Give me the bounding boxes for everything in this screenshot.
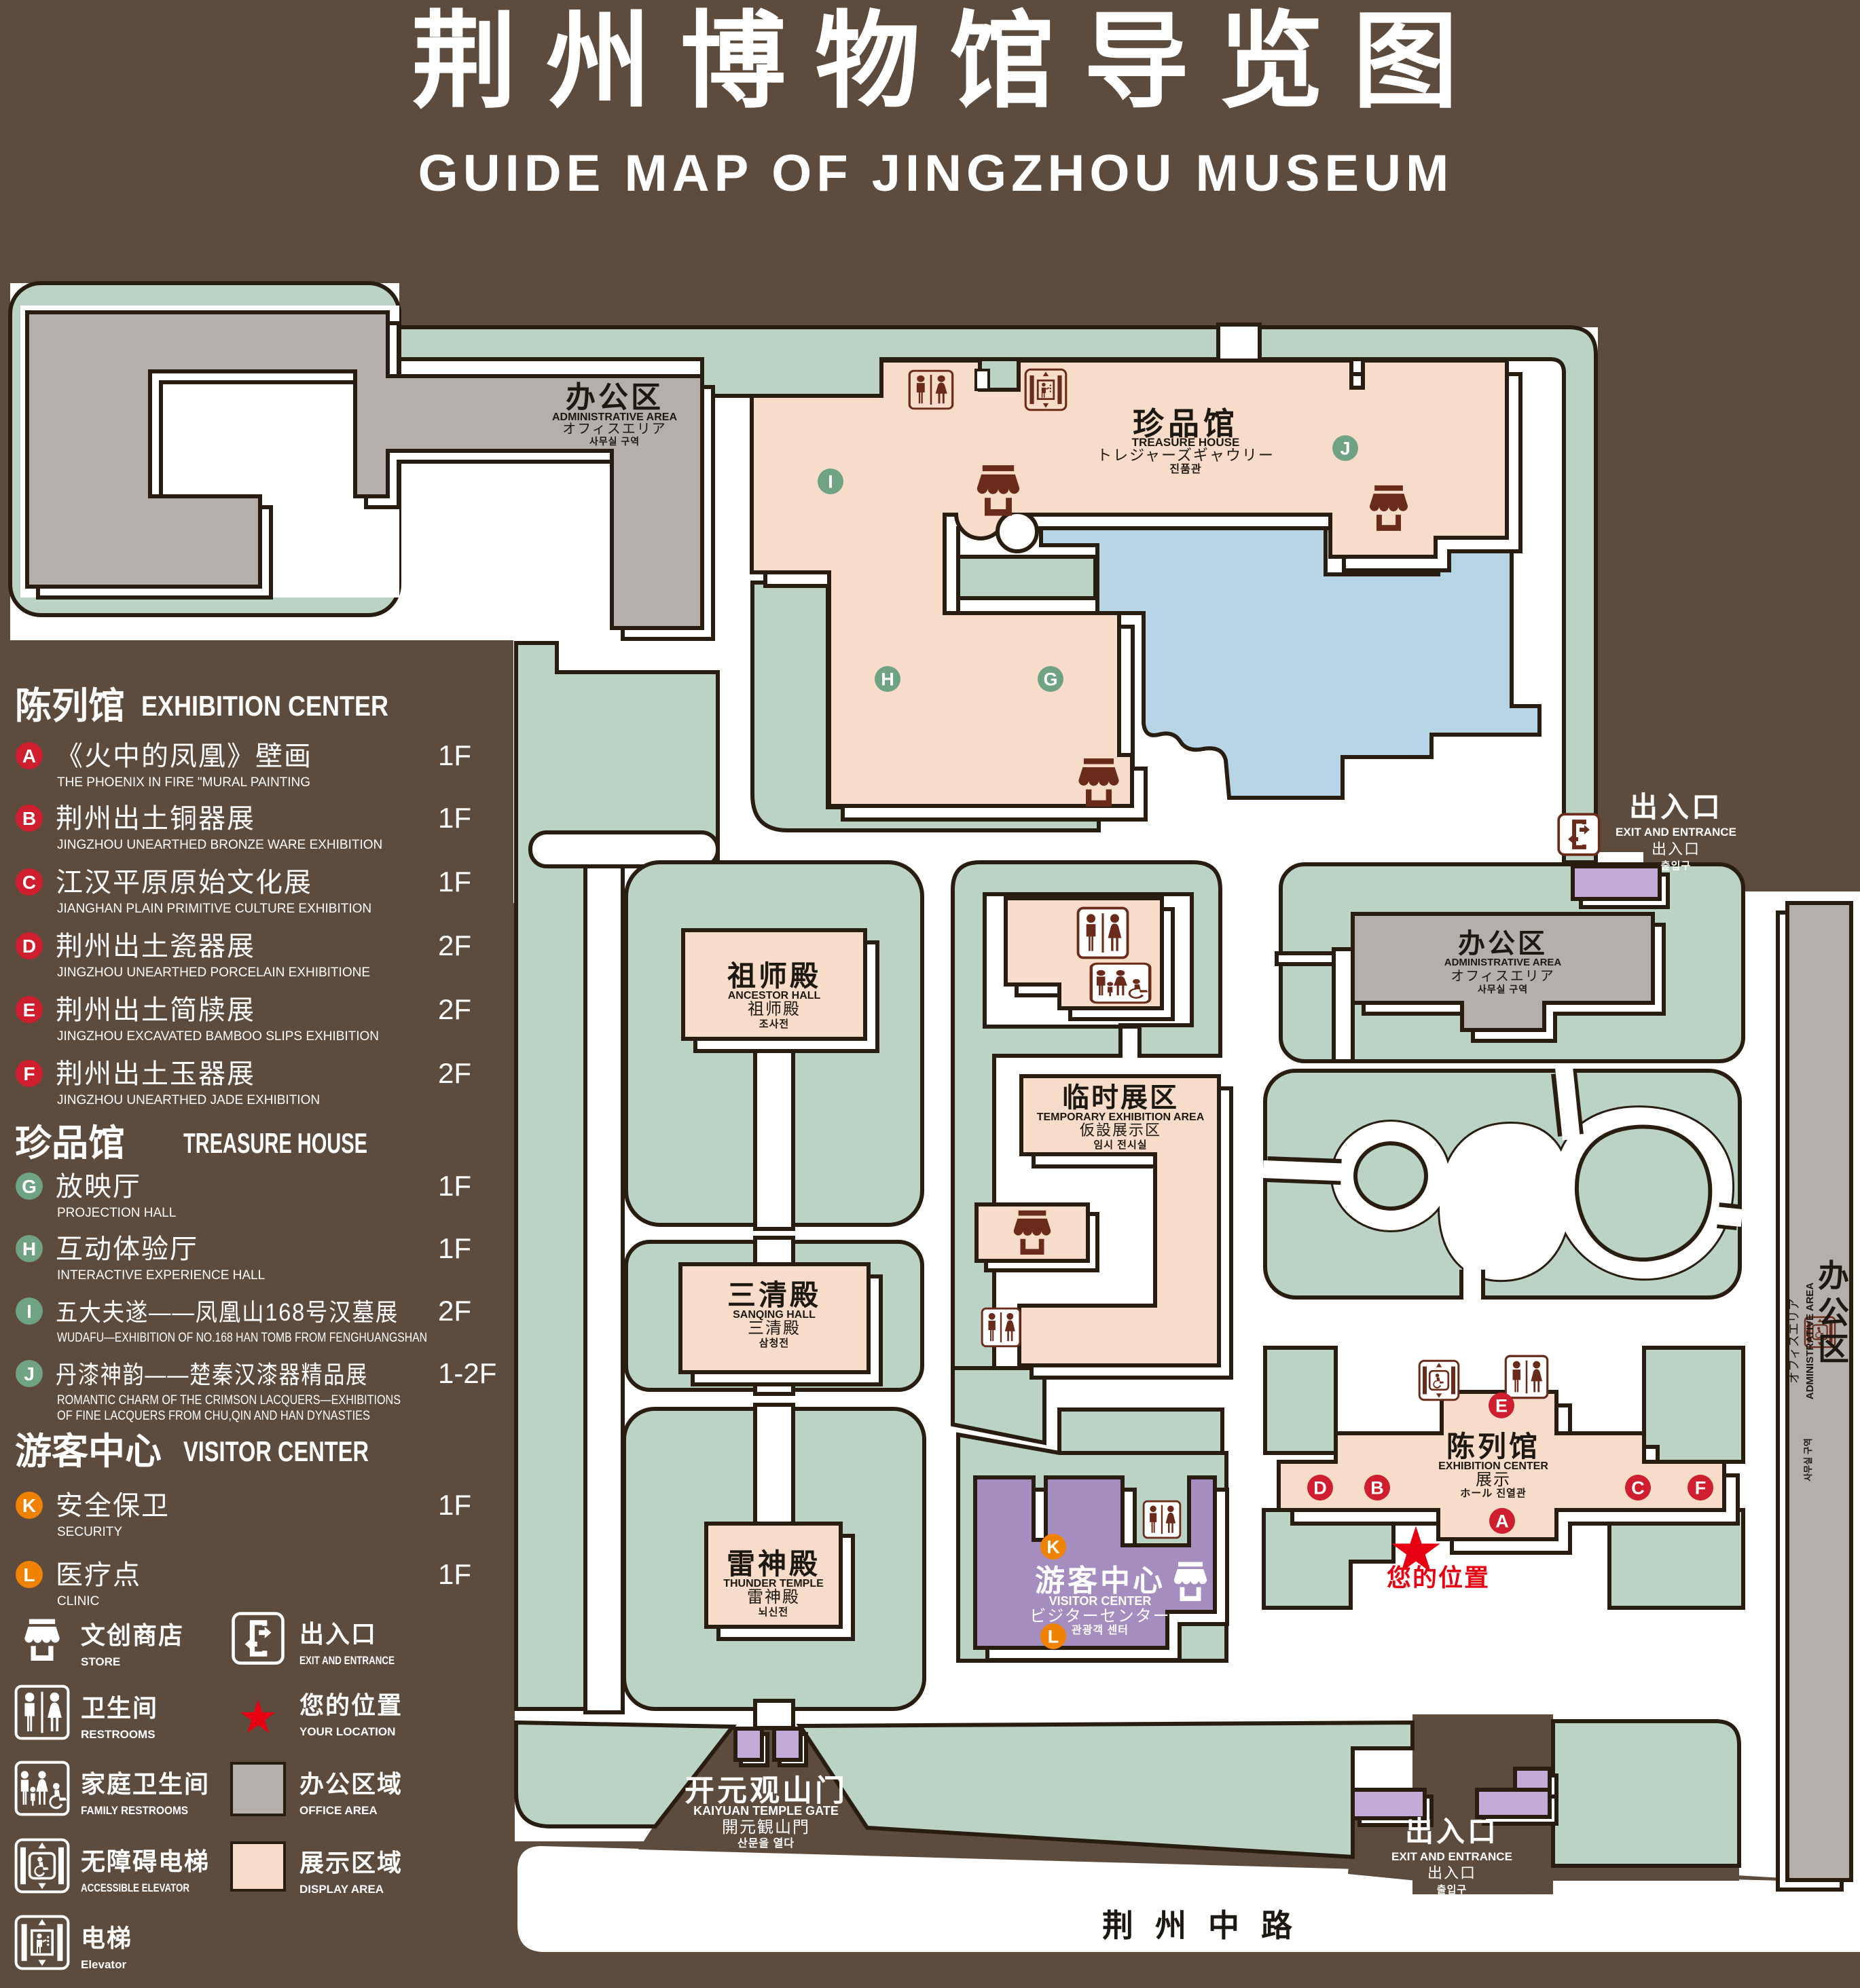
- svg-text:医疗点: 医疗点: [56, 1560, 141, 1590]
- svg-text:EXIT AND ENTRANCE: EXIT AND ENTRANCE: [299, 1654, 395, 1667]
- svg-text:VISITOR CENTER: VISITOR CENTER: [183, 1435, 369, 1467]
- svg-text:安全保卫: 安全保卫: [56, 1491, 170, 1521]
- svg-text:互动体验厅: 互动体验厅: [56, 1234, 198, 1264]
- svg-text:オフィスエリア: オフィスエリア: [1787, 1298, 1801, 1384]
- svg-text:THE PHOENIX IN FIRE "MURAL PAI: THE PHOENIX IN FIRE "MURAL PAINTING: [57, 775, 310, 790]
- svg-text:B: B: [1370, 1478, 1384, 1498]
- svg-text:F: F: [1695, 1478, 1707, 1498]
- svg-text:J: J: [1340, 439, 1350, 459]
- svg-text:C: C: [22, 872, 36, 893]
- svg-text:CLINIC: CLINIC: [57, 1594, 99, 1608]
- svg-text:E: E: [23, 999, 36, 1020]
- svg-text:卫生间: 卫生间: [81, 1694, 158, 1722]
- svg-text:A: A: [22, 745, 36, 767]
- svg-text:丹漆神韵——楚秦汉漆器精品展: 丹漆神韵——楚秦汉漆器精品展: [56, 1361, 368, 1388]
- svg-text:G: G: [22, 1176, 37, 1197]
- svg-text:VISITOR CENTER: VISITOR CENTER: [1049, 1594, 1152, 1608]
- svg-text:1F: 1F: [438, 1232, 471, 1264]
- svg-text:출입구: 출입구: [1661, 860, 1691, 872]
- svg-text:ADMINISTRATIVE AREA: ADMINISTRATIVE AREA: [1444, 957, 1562, 968]
- svg-text:展示: 展示: [1476, 1471, 1511, 1489]
- svg-text:ACCESSIBLE ELEVATOR: ACCESSIBLE ELEVATOR: [81, 1881, 189, 1894]
- svg-text:C: C: [1631, 1478, 1645, 1498]
- svg-text:游客中心: 游客中心: [15, 1431, 162, 1472]
- svg-text:J: J: [24, 1363, 35, 1384]
- svg-text:A: A: [1495, 1511, 1509, 1532]
- svg-text:FAMILY RESTROOMS: FAMILY RESTROOMS: [81, 1804, 188, 1817]
- svg-text:H: H: [22, 1238, 36, 1259]
- svg-text:出入口: 出入口: [1405, 1816, 1499, 1847]
- svg-text:임시 전시실: 임시 전시실: [1093, 1139, 1147, 1151]
- svg-text:出入口: 出入口: [299, 1620, 377, 1648]
- svg-text:祖师殿: 祖师殿: [727, 960, 821, 992]
- svg-text:办公区: 办公区: [566, 381, 663, 414]
- svg-text:TREASURE HOUSE: TREASURE HOUSE: [183, 1127, 367, 1159]
- svg-text:办公区域: 办公区域: [299, 1770, 403, 1798]
- svg-text:뇌신전: 뇌신전: [759, 1606, 788, 1618]
- svg-text:EXHIBITION CENTER: EXHIBITION CENTER: [141, 690, 388, 722]
- svg-text:1F: 1F: [438, 739, 471, 771]
- svg-text:L: L: [23, 1564, 35, 1585]
- svg-text:K: K: [1046, 1537, 1060, 1558]
- svg-text:JINGZHOU UNEARTHED PORCELAIN E: JINGZHOU UNEARTHED PORCELAIN EXHIBITIONE: [57, 965, 370, 980]
- svg-text:祖师殿: 祖师殿: [748, 1000, 801, 1018]
- svg-text:荆州出土铜器展: 荆州出土铜器展: [56, 804, 255, 834]
- svg-text:文创商店: 文创商店: [81, 1621, 184, 1649]
- svg-text:I: I: [828, 472, 833, 492]
- svg-text:L: L: [1048, 1627, 1059, 1647]
- svg-text:JIANGHAN PLAIN PRIMITIVE CULTU: JIANGHAN PLAIN PRIMITIVE CULTURE EXHIBIT…: [57, 902, 371, 916]
- svg-text:出入口: 出入口: [1652, 841, 1700, 858]
- svg-text:관광객 센터: 관광객 센터: [1072, 1623, 1129, 1636]
- svg-text:2F: 2F: [438, 993, 471, 1025]
- svg-text:INTERACTIVE EXPERIENCE HALL: INTERACTIVE EXPERIENCE HALL: [57, 1268, 265, 1283]
- svg-text:E: E: [1495, 1396, 1508, 1416]
- svg-text:オフィスエリア: オフィスエリア: [1451, 969, 1555, 984]
- svg-text:《火中的凤凰》壁画: 《火中的凤凰》壁画: [56, 741, 312, 771]
- svg-text:G: G: [1043, 669, 1057, 690]
- svg-text:OF FINE LACQUERS FROM CHU,QIN: OF FINE LACQUERS FROM CHU,QIN AND HAN DY…: [57, 1409, 370, 1423]
- svg-text:D: D: [1313, 1478, 1327, 1498]
- svg-text:D: D: [22, 936, 36, 957]
- svg-text:荆州博物馆导览图: 荆州博物馆导览图: [412, 3, 1487, 120]
- svg-text:珍品馆: 珍品馆: [15, 1123, 125, 1164]
- svg-text:1F: 1F: [438, 1489, 471, 1521]
- svg-text:사무실 구역: 사무실 구역: [589, 436, 640, 447]
- svg-text:SECURITY: SECURITY: [57, 1525, 122, 1539]
- svg-text:办公区: 办公区: [1458, 929, 1548, 959]
- svg-text:ROMANTIC CHARM OF THE CRIMSON: ROMANTIC CHARM OF THE CRIMSON LACQUERS—E…: [57, 1393, 401, 1407]
- svg-text:1F: 1F: [438, 802, 471, 834]
- svg-text:トレジャーズギャウリー: トレジャーズギャウリー: [1097, 447, 1275, 464]
- svg-text:您的位置: 您的位置: [299, 1691, 403, 1719]
- svg-text:三清殿: 三清殿: [748, 1319, 801, 1338]
- svg-text:B: B: [22, 808, 36, 829]
- svg-text:EXIT AND ENTRANCE: EXIT AND ENTRANCE: [1391, 1850, 1512, 1863]
- svg-text:江汉平原原始文化展: 江汉平原原始文化展: [56, 868, 312, 898]
- svg-text:DISPLAY AREA: DISPLAY AREA: [299, 1883, 384, 1896]
- svg-text:JINGZHOU UNEARTHED JADE EXHIBI: JINGZHOU UNEARTHED JADE EXHIBITION: [57, 1093, 320, 1107]
- svg-text:1-2F: 1-2F: [438, 1357, 496, 1389]
- svg-text:展示区域: 展示区域: [299, 1849, 403, 1877]
- svg-text:2F: 2F: [438, 1057, 471, 1089]
- svg-text:1F: 1F: [438, 1170, 471, 1202]
- svg-text:PROJECTION HALL: PROJECTION HALL: [57, 1206, 176, 1220]
- svg-text:仮設展示区: 仮設展示区: [1080, 1122, 1161, 1139]
- svg-text:K: K: [22, 1495, 36, 1516]
- svg-text:GUIDE MAP OF JINGZHOU MUSEUM: GUIDE MAP OF JINGZHOU MUSEUM: [418, 145, 1454, 202]
- svg-text:ホール 진열관: ホール 진열관: [1460, 1488, 1527, 1499]
- svg-text:出入口: 出入口: [1427, 1864, 1476, 1881]
- svg-text:H: H: [881, 669, 894, 690]
- svg-text:출입구: 출입구: [1437, 1884, 1467, 1896]
- svg-text:1F: 1F: [438, 866, 471, 898]
- svg-text:삼청전: 삼청전: [759, 1338, 789, 1349]
- svg-text:사무실 구역: 사무실 구역: [1478, 984, 1528, 995]
- svg-text:JINGZHOU EXCAVATED BAMBOO SLIP: JINGZHOU EXCAVATED BAMBOO SLIPS EXHIBITI…: [57, 1029, 379, 1044]
- svg-text:EXIT AND ENTRANCE: EXIT AND ENTRANCE: [1616, 826, 1736, 839]
- svg-text:산문을 열다: 산문을 열다: [737, 1837, 795, 1849]
- svg-text:无障碍电梯: 无障碍电梯: [81, 1847, 210, 1875]
- svg-text:F: F: [23, 1063, 35, 1084]
- svg-text:三清殿: 三清殿: [727, 1279, 821, 1311]
- svg-text:游客中心: 游客中心: [1035, 1564, 1165, 1598]
- svg-text:ビジターセンター: ビジターセンター: [1029, 1607, 1171, 1625]
- svg-text:開元観山門: 開元観山門: [722, 1818, 810, 1837]
- svg-text:雷神殿: 雷神殿: [747, 1588, 800, 1606]
- svg-text:2F: 2F: [438, 1295, 471, 1327]
- svg-text:WUDAFU—EXHIBITION OF NO.168 HA: WUDAFU—EXHIBITION OF NO.168 HAN TOMB FRO…: [57, 1331, 427, 1345]
- svg-text:雷神殿: 雷神殿: [727, 1548, 820, 1580]
- svg-text:放映厅: 放映厅: [56, 1172, 141, 1202]
- svg-text:荆州出土玉器展: 荆州出土玉器展: [56, 1059, 255, 1089]
- svg-text:1F: 1F: [438, 1558, 471, 1590]
- svg-text:KAIYUAN TEMPLE GATE: KAIYUAN TEMPLE GATE: [693, 1804, 839, 1818]
- svg-text:五大夫遂——凤凰山168号汉墓展: 五大夫遂——凤凰山168号汉墓展: [56, 1298, 399, 1326]
- svg-text:家庭卫生间: 家庭卫生间: [81, 1770, 210, 1798]
- svg-text:临时展区: 临时展区: [1062, 1083, 1179, 1113]
- svg-text:진품관: 진품관: [1169, 463, 1201, 475]
- svg-text:YOUR LOCATION: YOUR LOCATION: [299, 1725, 395, 1738]
- svg-text:开元观山门: 开元观山门: [685, 1774, 847, 1807]
- svg-text:STORE: STORE: [81, 1655, 120, 1668]
- svg-text:ADMINISTRATIVE AREA: ADMINISTRATIVE AREA: [1804, 1283, 1816, 1400]
- svg-text:I: I: [26, 1301, 32, 1322]
- svg-text:陈列馆: 陈列馆: [1446, 1431, 1540, 1462]
- svg-text:电梯: 电梯: [81, 1924, 132, 1952]
- svg-text:荆州出土简牍展: 荆州出土简牍展: [56, 995, 255, 1025]
- svg-text:陈列馆: 陈列馆: [15, 686, 125, 726]
- svg-text:办公区: 办公区: [1818, 1258, 1849, 1367]
- svg-text:Elevator: Elevator: [81, 1958, 126, 1971]
- svg-text:2F: 2F: [438, 929, 471, 961]
- svg-text:JINGZHOU UNEARTHED BRONZE WARE: JINGZHOU UNEARTHED BRONZE WARE EXHIBITIO…: [57, 838, 382, 852]
- svg-text:RESTROOMS: RESTROOMS: [81, 1728, 156, 1741]
- svg-text:조사전: 조사전: [759, 1018, 789, 1030]
- svg-text:OFFICE AREA: OFFICE AREA: [299, 1804, 378, 1817]
- svg-text:您的位置: 您的位置: [1387, 1564, 1490, 1591]
- svg-text:出入口: 出入口: [1629, 791, 1723, 823]
- svg-text:オフィスエリア: オフィスエリア: [562, 422, 667, 437]
- svg-text:荆州出土瓷器展: 荆州出土瓷器展: [56, 932, 255, 961]
- svg-text:사무실 구역: 사무실 구역: [1803, 1438, 1813, 1481]
- svg-text:荆州中路: 荆州中路: [1102, 1908, 1314, 1943]
